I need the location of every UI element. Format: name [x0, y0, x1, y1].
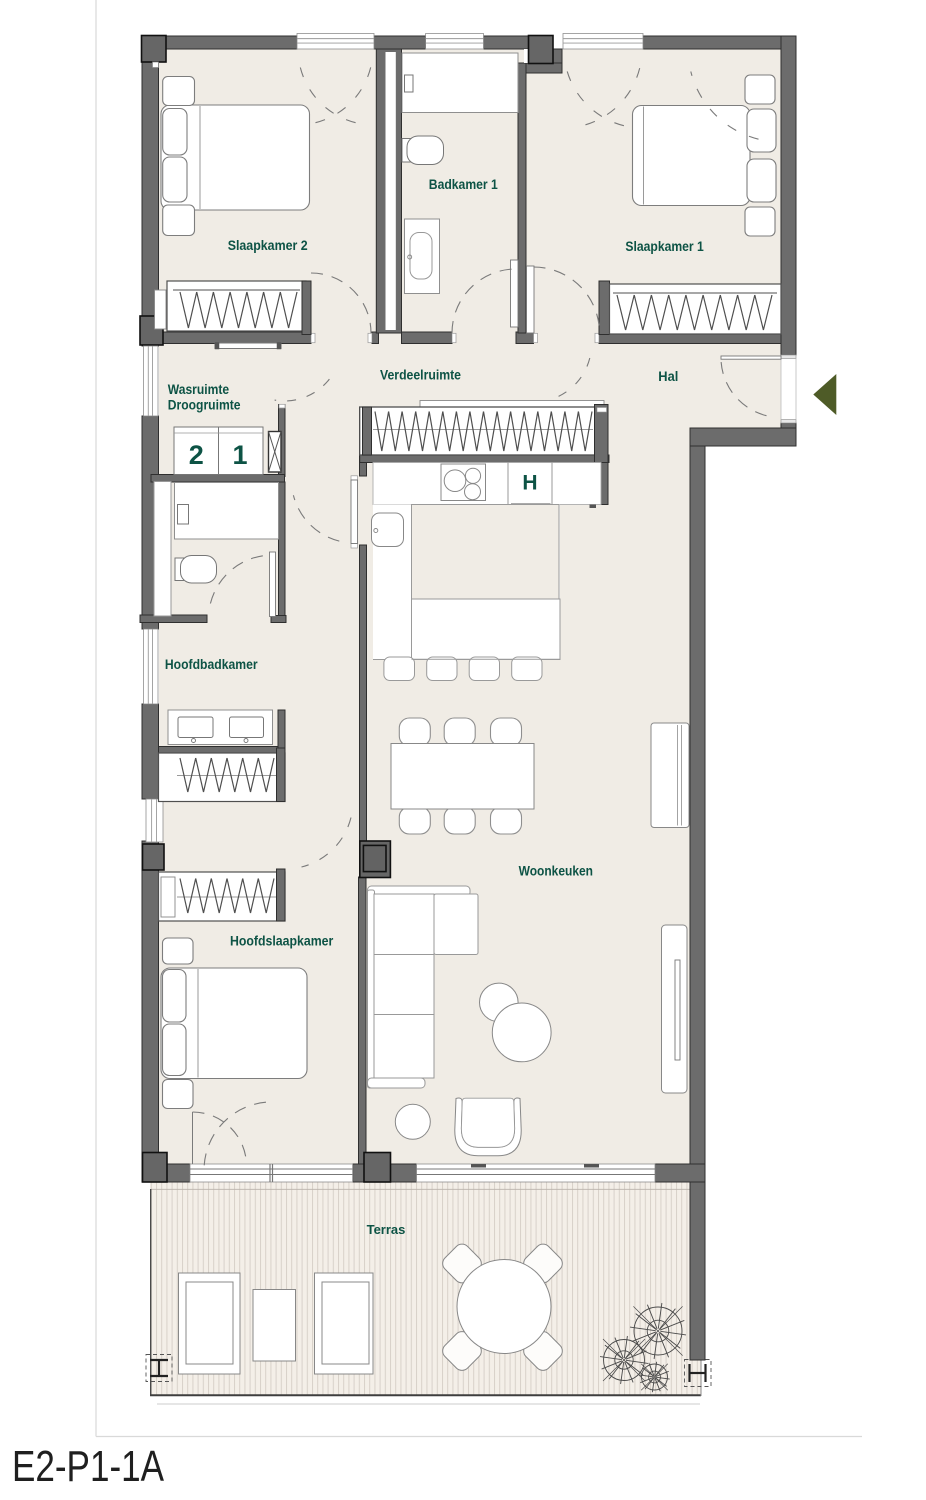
svg-text:Slaapkamer 2: Slaapkamer 2: [228, 238, 308, 253]
svg-text:2: 2: [189, 440, 204, 470]
svg-text:Hal: Hal: [658, 369, 678, 384]
svg-text:Wasruimte: Wasruimte: [168, 382, 229, 397]
svg-text:Hoofdslaapkamer: Hoofdslaapkamer: [230, 934, 334, 949]
svg-text:Badkamer 1: Badkamer 1: [429, 177, 498, 192]
svg-text:Slaapkamer 1: Slaapkamer 1: [625, 239, 704, 254]
svg-text:Hoofdbadkamer: Hoofdbadkamer: [165, 657, 258, 672]
svg-text:H: H: [522, 472, 537, 495]
svg-text:1: 1: [232, 440, 247, 470]
svg-text:Woonkeuken: Woonkeuken: [519, 864, 593, 879]
svg-text:Terras: Terras: [367, 1222, 406, 1237]
svg-text:E2-P1-1A: E2-P1-1A: [12, 1442, 165, 1491]
svg-text:Verdeelruimte: Verdeelruimte: [380, 368, 461, 383]
svg-text:Droogruimte: Droogruimte: [168, 398, 241, 413]
